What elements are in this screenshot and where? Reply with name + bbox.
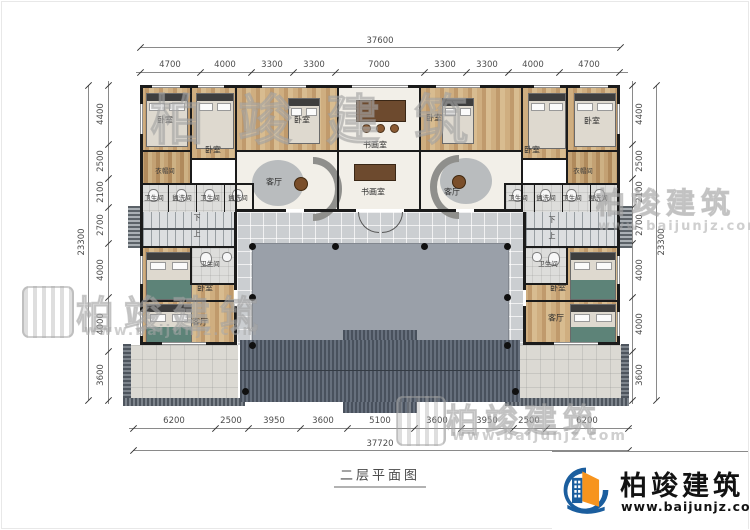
window — [140, 104, 143, 134]
room-label-bedroom: 卧室 — [550, 283, 566, 294]
dim-top-seg: 3300 — [303, 60, 325, 70]
wall — [224, 183, 225, 212]
column-dot — [249, 294, 256, 301]
terrace-right — [512, 345, 622, 401]
room-label-washroom: 盥洗间 — [172, 192, 192, 202]
ac-platform-left — [128, 206, 140, 248]
sink — [222, 252, 232, 262]
door-gap — [456, 209, 474, 212]
window — [152, 85, 180, 88]
dim-bottom-seg: 3950 — [476, 416, 498, 426]
stairs-down-label: 下 — [549, 215, 556, 225]
room-label-living: 客厅 — [192, 317, 208, 328]
wall — [252, 183, 254, 212]
terrace-railing — [505, 398, 629, 406]
dim-right-seg: 4000 — [635, 313, 645, 335]
entry-roof-ridge-top — [343, 330, 417, 340]
room-label-bathroom: 卫生间 — [144, 192, 164, 202]
door-gap — [234, 290, 237, 306]
room-label-washroom: 盥洗间 — [588, 192, 608, 202]
stairs-down-label: 下 — [194, 213, 201, 223]
dim-bottom-seg: 3950 — [263, 416, 285, 426]
desk — [356, 100, 406, 122]
room-label-living: 客厅 — [548, 313, 564, 324]
wall — [506, 183, 620, 185]
wall — [504, 183, 506, 212]
room-label-bedroom: 卧室 — [584, 116, 600, 127]
wall — [234, 212, 237, 345]
wall — [337, 85, 339, 212]
plan-title: 二层平面图 — [334, 465, 426, 488]
door-gap — [286, 209, 304, 212]
dim-left-seg: 4000 — [96, 313, 106, 335]
room-label-bedroom: 卧室 — [524, 145, 540, 156]
window — [617, 256, 620, 284]
dim-top-seg: 4700 — [159, 60, 181, 70]
dim-bottom-seg: 3600 — [312, 416, 334, 426]
dim-bottom-seg: 5100 — [369, 416, 391, 426]
window — [262, 85, 306, 88]
dim-top-seg: 3300 — [261, 60, 283, 70]
column-dot — [512, 388, 519, 395]
room-label-bathroom: 卫生间 — [538, 258, 558, 268]
room-label-living: 客厅 — [266, 177, 282, 188]
room-study-bottom — [337, 152, 421, 212]
window — [352, 85, 408, 88]
wall — [523, 246, 620, 248]
chair — [376, 124, 385, 133]
column-dot — [249, 342, 256, 349]
window — [580, 85, 608, 88]
bed — [570, 252, 616, 300]
room-label-cloakroom: 衣帽间 — [573, 165, 593, 175]
wall — [523, 158, 568, 160]
dim-top-seg: 3300 — [434, 60, 456, 70]
room-label-bedroom: 卧室 — [157, 115, 173, 126]
stairs-up-label: 上 — [549, 231, 556, 241]
dim-top-seg: 3300 — [476, 60, 498, 70]
dim-bottom-total: 37720 — [366, 439, 393, 449]
dim-left-seg: 2500 — [96, 150, 106, 172]
room-label-bedroom: 卧室 — [426, 113, 442, 124]
wall — [196, 183, 197, 212]
room-label-bathroom: 卫生间 — [200, 192, 220, 202]
wall — [421, 150, 523, 152]
dim-left-total: 23300 — [77, 228, 87, 255]
window — [198, 85, 224, 88]
wall — [168, 183, 169, 212]
desk — [354, 164, 396, 181]
room-label-bathroom: 卫生间 — [200, 258, 220, 268]
window — [140, 312, 143, 336]
dim-bottom-seg: 2500 — [518, 416, 540, 426]
column-dot — [504, 294, 511, 301]
room-label-bedroom: 卧室 — [197, 283, 213, 294]
wall — [192, 158, 237, 160]
window — [140, 256, 143, 284]
wall — [237, 150, 337, 152]
stair-rail — [526, 228, 617, 230]
company-logo-icon — [558, 462, 614, 518]
window — [162, 342, 206, 345]
column-dot — [242, 388, 249, 395]
dim-right-seg: 4000 — [635, 259, 645, 281]
dim-top-total: 37600 — [366, 36, 393, 46]
watermark-logo-left — [22, 286, 74, 338]
terrace-left — [128, 345, 238, 401]
dim-bottom-seg: 2500 — [220, 416, 242, 426]
dim-top-seg: 4000 — [522, 60, 544, 70]
dim-right-seg: 4400 — [635, 103, 645, 125]
dim-right-seg: 2500 — [635, 150, 645, 172]
terrace-railing — [621, 344, 629, 406]
column-dot — [504, 243, 511, 250]
dim-top-seg: 4700 — [578, 60, 600, 70]
stair-rail — [143, 228, 234, 230]
wall — [140, 150, 192, 152]
room-label-living: 客厅 — [444, 187, 460, 198]
dim-line-top-segments — [136, 72, 628, 73]
entry-roof — [240, 340, 520, 402]
wall — [140, 300, 237, 302]
column-dot — [421, 243, 428, 250]
dim-line-top-total — [140, 47, 620, 48]
dim-left-seg: 2100 — [96, 181, 106, 203]
wall — [523, 212, 526, 345]
dim-left-seg: 4400 — [96, 103, 106, 125]
terrace-railing — [123, 398, 245, 406]
window — [617, 312, 620, 336]
company-logo-block: 柏竣建筑 www.baijunjz.com — [552, 451, 748, 529]
wall — [190, 248, 192, 285]
company-url: www.baijunjz.com — [621, 499, 750, 514]
company-name: 柏竣建筑 — [620, 464, 744, 503]
window — [436, 85, 480, 88]
ac-platform-right — [620, 206, 632, 248]
dim-line-bottom-segments — [129, 428, 632, 429]
dim-top-seg: 4000 — [214, 60, 236, 70]
room-label-bedroom: 卧室 — [205, 145, 221, 156]
window — [554, 342, 598, 345]
door-gap — [523, 290, 526, 306]
watermark-logo-bottom — [396, 396, 446, 446]
room-label-study: 书画室 — [361, 187, 385, 198]
bed — [146, 252, 192, 300]
dim-bottom-seg: 6200 — [576, 416, 598, 426]
column-dot — [332, 243, 339, 250]
dim-left-seg: 4000 — [96, 259, 106, 281]
room-bedroom-center-left — [237, 85, 337, 152]
terrace-railing — [123, 344, 131, 406]
wall — [568, 150, 620, 152]
dim-right-seg: 3600 — [635, 364, 645, 386]
dim-line-left-total — [88, 85, 89, 400]
room-label-cloakroom: 衣帽间 — [155, 165, 175, 175]
wall — [190, 85, 192, 183]
room-label-bathroom: 卫生间 — [562, 192, 582, 202]
window — [617, 104, 620, 134]
bed — [570, 304, 616, 344]
dim-right-seg: 2100 — [635, 181, 645, 203]
wall — [140, 183, 254, 185]
room-label-washroom: 盥洗间 — [536, 192, 556, 202]
dim-right-total: 23300 — [657, 228, 667, 255]
column-dot — [504, 342, 511, 349]
dim-top-seg: 7000 — [368, 60, 390, 70]
wall — [523, 300, 620, 302]
bed — [528, 93, 566, 149]
chair — [390, 124, 399, 133]
tea-table — [294, 177, 308, 191]
wall — [419, 85, 421, 212]
wall — [566, 85, 568, 183]
dim-left-seg: 2700 — [96, 214, 106, 236]
bed — [442, 98, 474, 144]
wall — [566, 248, 568, 285]
bed — [146, 304, 192, 344]
room-label-bathroom: 卫生间 — [508, 192, 528, 202]
room-label-study: 书画室 — [363, 140, 387, 151]
dim-right-seg: 2700 — [635, 214, 645, 236]
window — [534, 85, 560, 88]
dim-left-seg: 3600 — [96, 364, 106, 386]
wall — [140, 246, 237, 248]
stairs-up-label: 上 — [194, 229, 201, 239]
room-label-bedroom: 卧室 — [294, 115, 310, 126]
room-label-washroom: 盥洗间 — [228, 192, 248, 202]
floor-plan-sheet: 卧室 卧室 卧室 书画室 书画室 卧室 客厅 客厅 卧室 卧室 衣帽间 衣帽间 … — [0, 0, 750, 530]
dim-bottom-seg: 6200 — [163, 416, 185, 426]
chair — [362, 124, 371, 133]
wall — [534, 183, 535, 212]
roof-ridge-line — [240, 370, 520, 371]
bed — [196, 93, 234, 149]
column-dot — [249, 243, 256, 250]
